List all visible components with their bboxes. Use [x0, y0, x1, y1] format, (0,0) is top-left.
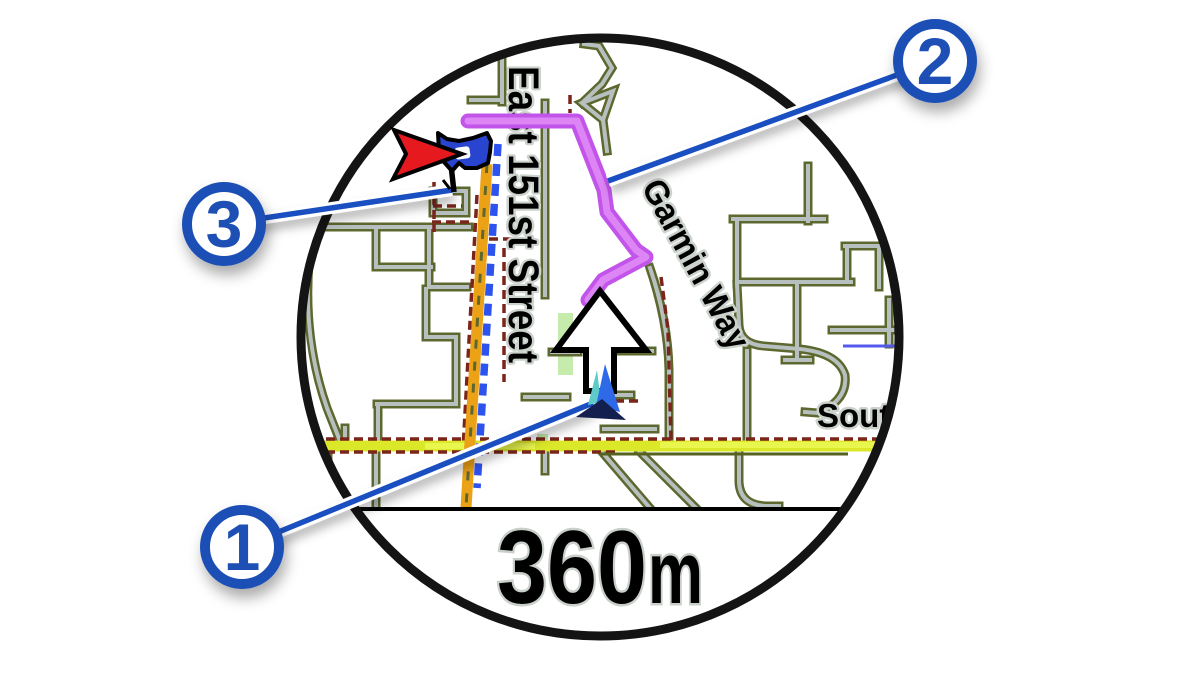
svg-text:Sout: Sout [817, 397, 890, 434]
svg-text:360: 360 [497, 510, 647, 626]
svg-text:3: 3 [206, 187, 243, 261]
svg-text:East 151st Street: East 151st Street [499, 66, 547, 363]
svg-text:2: 2 [917, 24, 954, 98]
svg-text:m: m [648, 523, 703, 622]
svg-text:1: 1 [224, 510, 261, 584]
